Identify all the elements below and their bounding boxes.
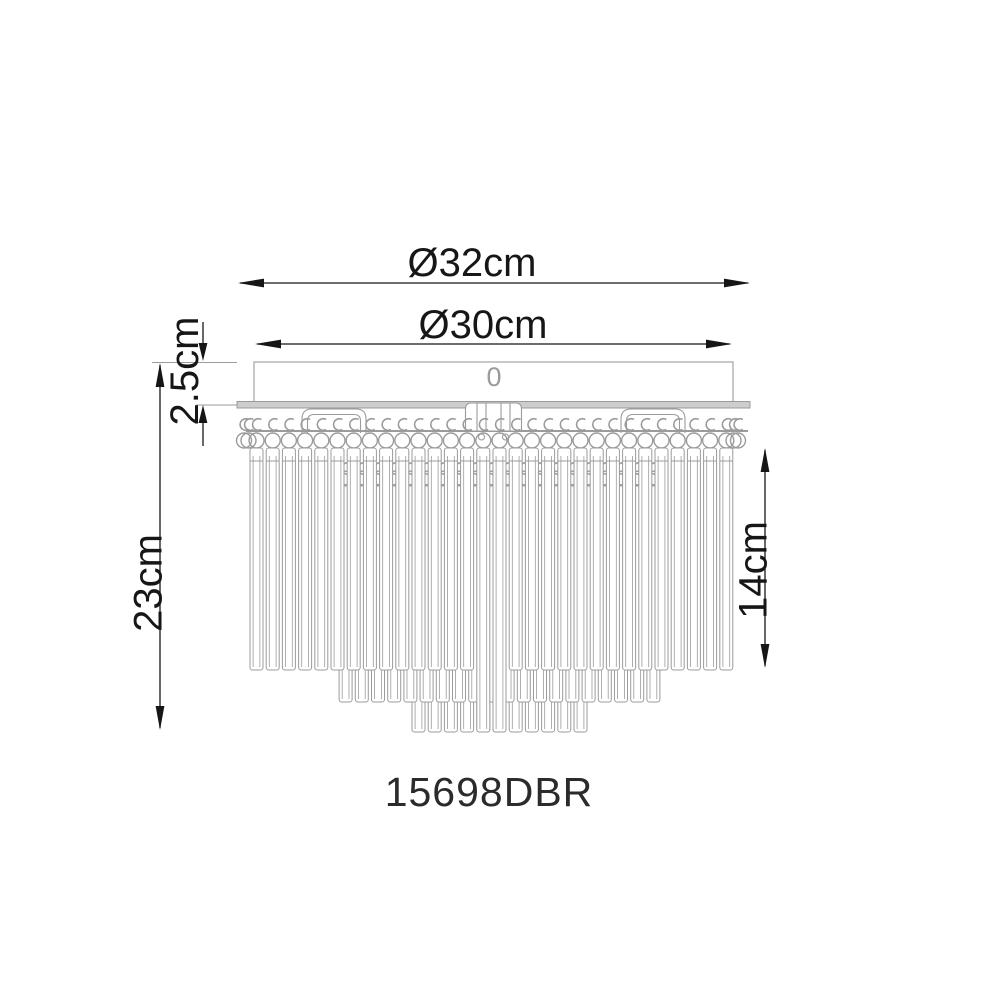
dimension-canopy-height: 2.5cm bbox=[163, 317, 207, 446]
dimension-crystal-drop: 14cm bbox=[732, 448, 776, 668]
hanging-hook-icon bbox=[269, 419, 278, 431]
crystal-ring bbox=[573, 433, 588, 448]
crystal-rod bbox=[655, 448, 668, 670]
crystal-ring bbox=[670, 433, 685, 448]
dimension-inner-diameter: Ø30cm bbox=[255, 303, 732, 348]
crystal-ring bbox=[605, 433, 620, 448]
crystal-ring bbox=[703, 433, 718, 448]
hanging-hook-icon bbox=[593, 419, 602, 431]
hanging-hook-icon bbox=[560, 419, 569, 431]
hanging-hook-icon bbox=[734, 419, 743, 431]
crystal-rod bbox=[509, 448, 522, 670]
crystal-rod bbox=[412, 448, 425, 670]
crystal-ring bbox=[654, 433, 669, 448]
crystal-rod bbox=[331, 448, 344, 670]
hanging-hook-icon bbox=[528, 419, 537, 431]
hanging-hook-icon bbox=[253, 419, 262, 431]
crystal-ring bbox=[686, 433, 701, 448]
crystal-ring bbox=[346, 433, 361, 448]
crystal-rod bbox=[315, 448, 328, 670]
crystal-ring bbox=[427, 433, 442, 448]
crystal-rod bbox=[461, 448, 474, 670]
hanging-hook-icon bbox=[366, 419, 375, 431]
model-number: 15698DBR bbox=[385, 769, 594, 815]
canopy-center-mark: 0 bbox=[486, 362, 501, 392]
crystal-ring bbox=[638, 433, 653, 448]
crystal-ring bbox=[395, 433, 410, 448]
crystal-ring bbox=[460, 433, 475, 448]
crystal-ring bbox=[508, 433, 523, 448]
hanging-hook-icon bbox=[415, 419, 424, 431]
hanging-hook-icon bbox=[334, 419, 343, 431]
crystal-rod bbox=[493, 448, 506, 732]
diagram-canvas: 0 bbox=[0, 0, 1000, 1000]
crystal-rod bbox=[704, 448, 717, 670]
crystal-ring bbox=[411, 433, 426, 448]
crystal-ring bbox=[330, 433, 345, 448]
product-dimension-diagram: 0 bbox=[0, 0, 1000, 1000]
crystal-rod bbox=[542, 448, 555, 670]
crystal-rod bbox=[590, 448, 603, 670]
crystal-rod bbox=[250, 448, 263, 670]
hanging-hook-icon bbox=[382, 419, 391, 431]
crystal-ring bbox=[314, 433, 329, 448]
hanging-hook-icon bbox=[674, 419, 683, 431]
hanging-hook-icon bbox=[350, 419, 359, 431]
hanging-hook-icon bbox=[431, 419, 440, 431]
crystal-rod bbox=[623, 448, 636, 670]
crystal-rod bbox=[299, 448, 312, 670]
crystal-rod bbox=[347, 448, 360, 670]
inner-diameter-label: Ø30cm bbox=[419, 303, 548, 347]
crystal-rod bbox=[266, 448, 279, 670]
crystal-rod bbox=[380, 448, 393, 670]
crystal-rod bbox=[574, 448, 587, 670]
hanging-hook-icon bbox=[285, 419, 294, 431]
hanging-hook-icon bbox=[609, 419, 618, 431]
crystal-ring bbox=[362, 433, 377, 448]
canopy-height-label: 2.5cm bbox=[163, 317, 207, 426]
crystal-ring bbox=[492, 433, 507, 448]
crystal-rod bbox=[558, 448, 571, 670]
crystal-rod bbox=[363, 448, 376, 670]
hanging-hook-icon bbox=[577, 419, 586, 431]
crystal-ring bbox=[281, 433, 296, 448]
hanging-hook-icon bbox=[641, 419, 650, 431]
hanging-hook-icon bbox=[398, 419, 407, 431]
hanging-hook-icon bbox=[317, 419, 326, 431]
crystal-ring bbox=[541, 433, 556, 448]
light-fixture-drawing: 0 bbox=[237, 362, 751, 732]
crystal-rod bbox=[444, 448, 457, 670]
crystal-drop-label: 14cm bbox=[732, 521, 776, 619]
hanging-hook-icon bbox=[690, 419, 699, 431]
hanging-hook-icon bbox=[544, 419, 553, 431]
crystal-rod bbox=[639, 448, 652, 670]
crystal-rod bbox=[525, 448, 538, 670]
crystal-ring bbox=[443, 433, 458, 448]
crystal-rod bbox=[671, 448, 684, 670]
crystal-ring bbox=[524, 433, 539, 448]
crystal-rod bbox=[606, 448, 619, 670]
hanging-hook-icon bbox=[447, 419, 456, 431]
dimension-outer-diameter: Ø32cm bbox=[238, 241, 750, 287]
outer-diameter-label: Ø32cm bbox=[408, 241, 537, 285]
crystal-rod bbox=[477, 448, 490, 732]
crystal-ring bbox=[557, 433, 572, 448]
total-height-label: 23cm bbox=[127, 534, 171, 632]
hanging-hook-icon bbox=[658, 419, 667, 431]
crystal-ring bbox=[265, 433, 280, 448]
crystal-ring bbox=[298, 433, 313, 448]
crystal-rod bbox=[428, 448, 441, 670]
crystal-ring bbox=[622, 433, 637, 448]
crystal-rod bbox=[396, 448, 409, 670]
crystal-rod bbox=[282, 448, 295, 670]
hanging-hook-icon bbox=[706, 419, 715, 431]
crystal-ring bbox=[379, 433, 394, 448]
crystal-ring bbox=[589, 433, 604, 448]
crystal-rod bbox=[687, 448, 700, 670]
